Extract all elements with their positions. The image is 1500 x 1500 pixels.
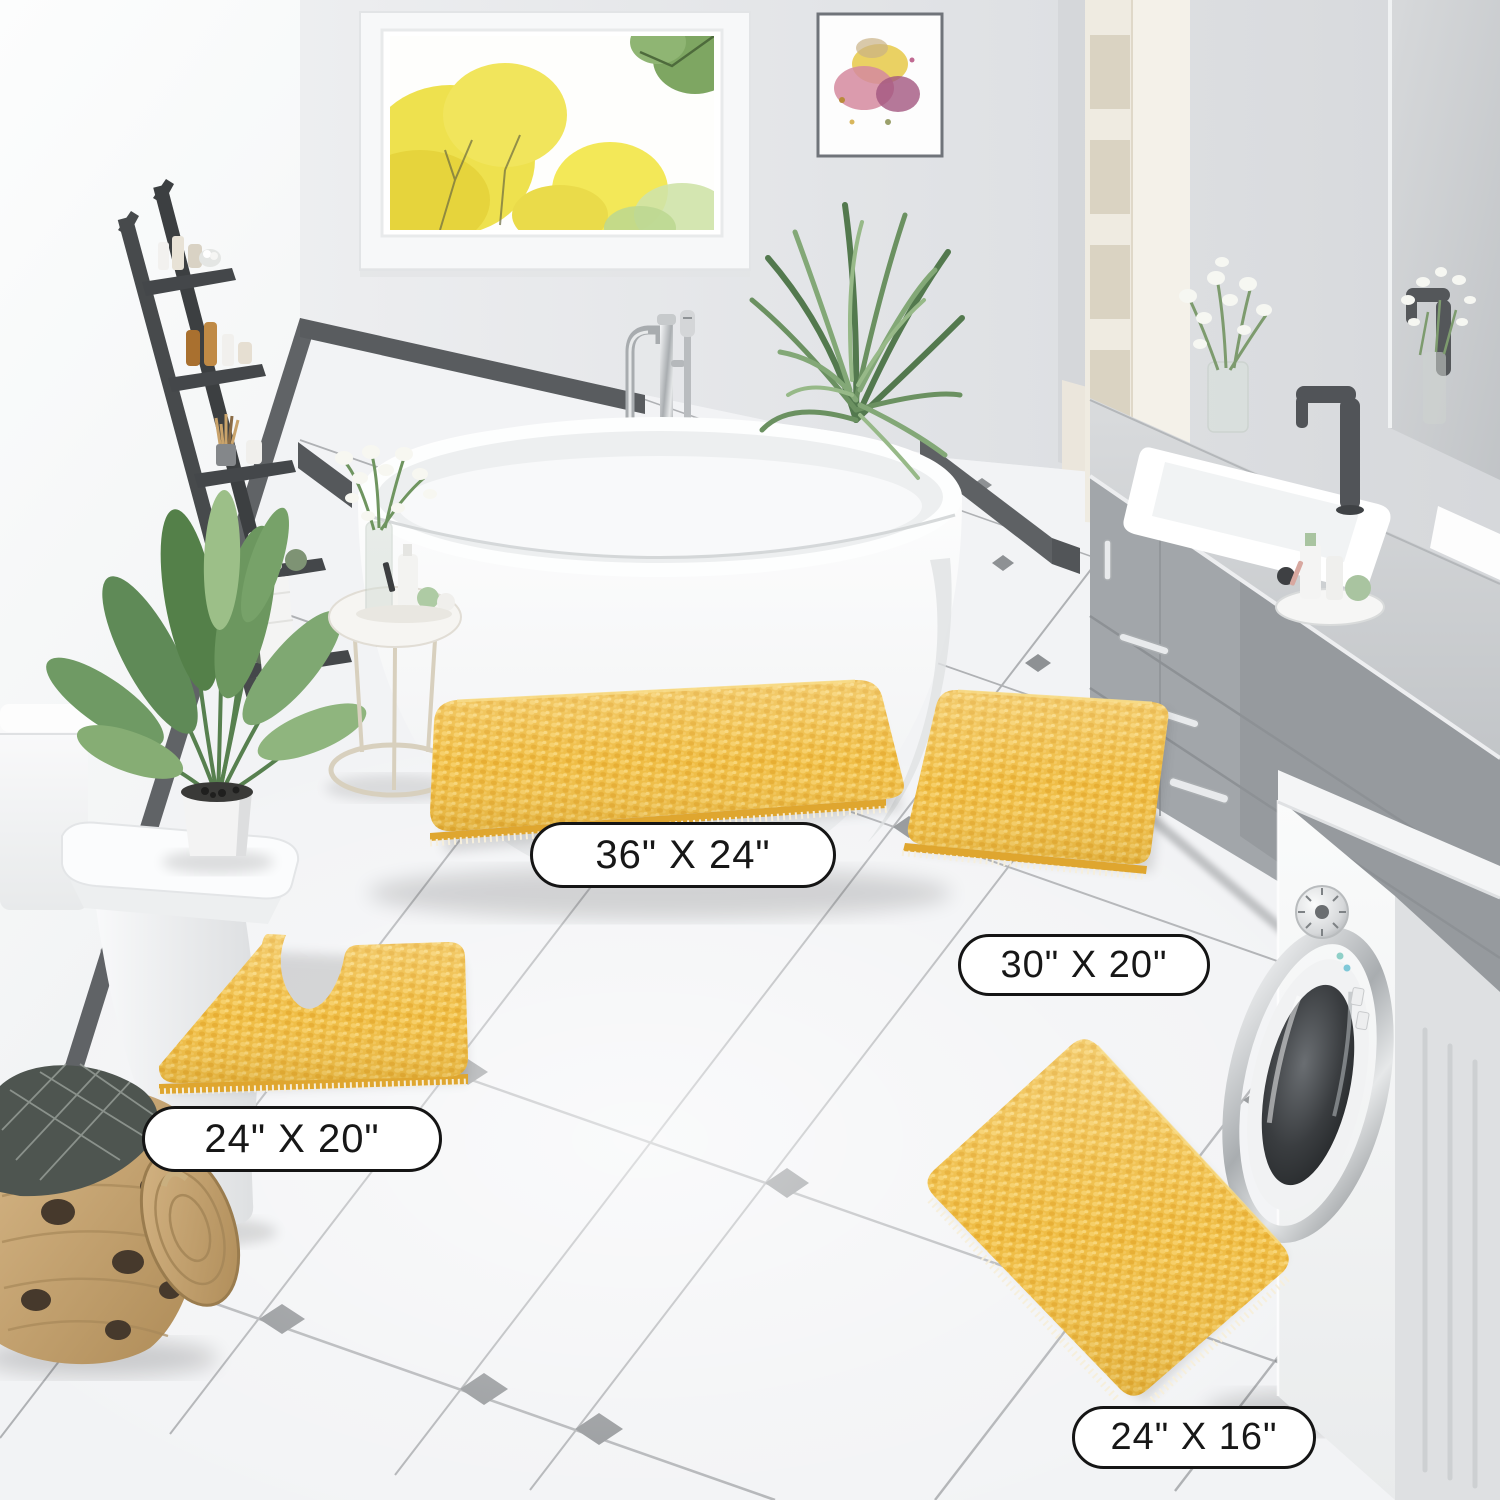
window-view [350, 20, 737, 250]
bathroom-scene: 36" X 24" 30" X 20" 24" X 20" 24" X 16" [0, 0, 1500, 1500]
window [350, 12, 750, 277]
size-label-30x20: 30" X 20" [958, 934, 1210, 996]
size-label-24x20: 24" X 20" [142, 1106, 442, 1172]
bathroom-scene-svg [0, 0, 1500, 1500]
washer-indicator-light [1337, 953, 1344, 960]
wall-art [818, 14, 942, 156]
washer-button [1351, 987, 1365, 1006]
rug-30x20 [902, 690, 1169, 877]
washer-dial [1296, 886, 1348, 938]
size-label-36x24: 36" X 24" [530, 822, 836, 888]
size-label-24x16: 24" X 16" [1072, 1406, 1316, 1469]
wall-mirror [1390, 0, 1500, 480]
